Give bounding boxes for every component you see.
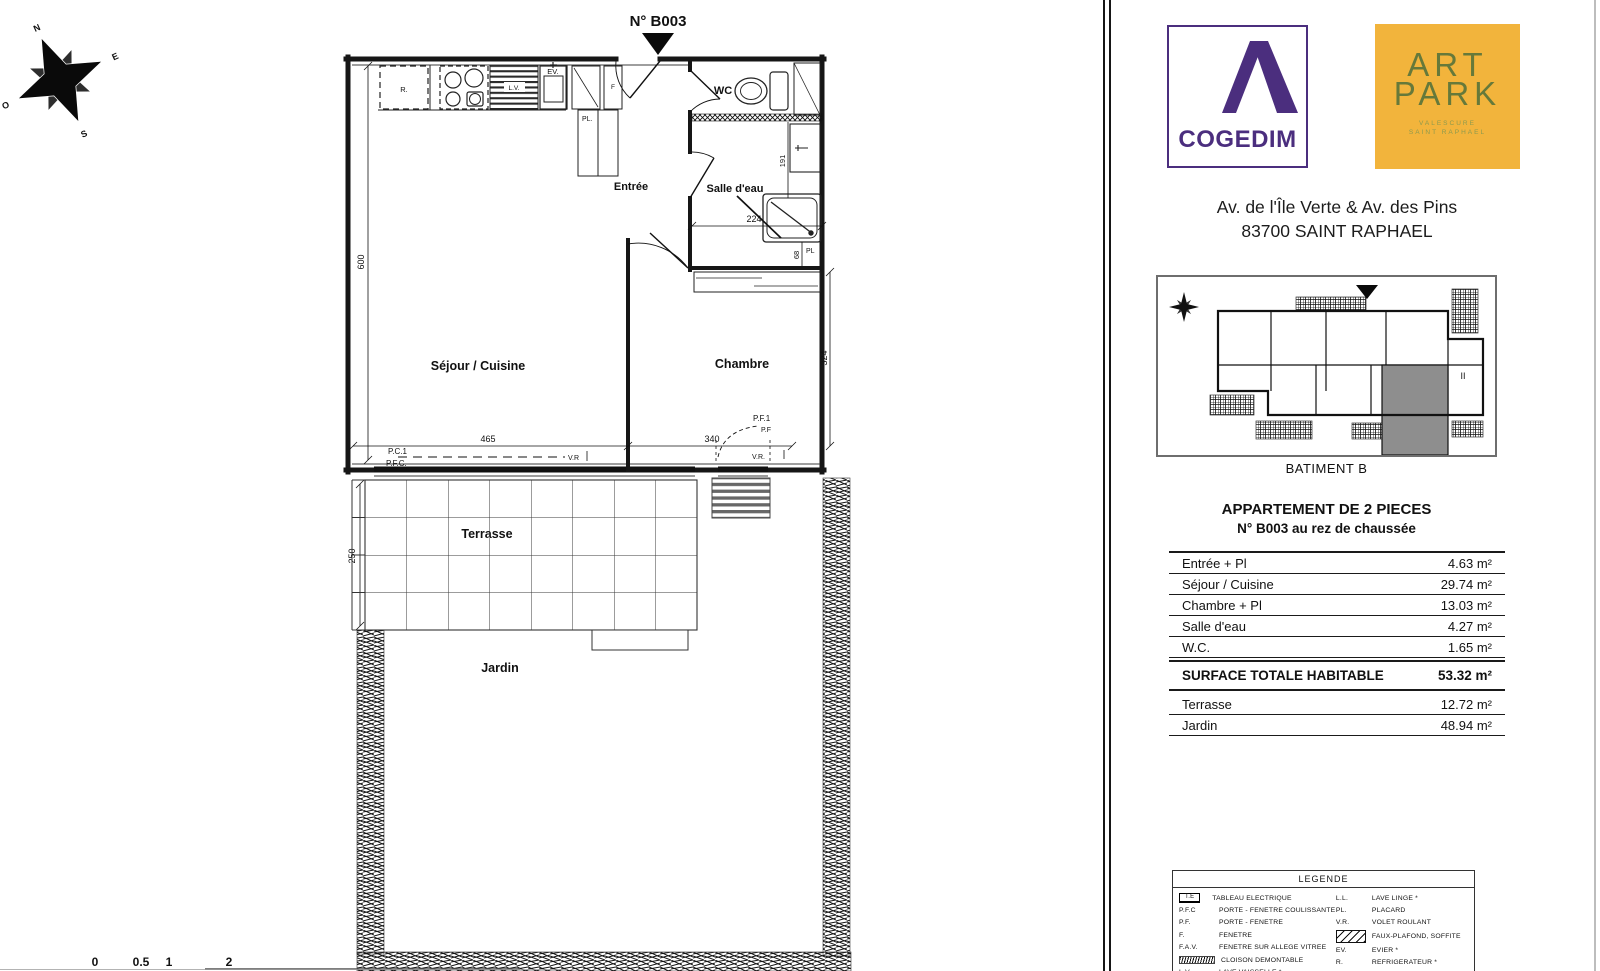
title-line2: N° B003 au rez de chaussée	[1156, 521, 1497, 536]
key-plan-level: II	[1460, 371, 1465, 381]
table-row: Terrasse 12.72 m²	[1169, 694, 1505, 715]
dim-sejour-w: 465	[480, 434, 495, 444]
legend-label: TABLEAU ELECTRIQUE	[1212, 895, 1336, 902]
legend-item: P.F.C PORTE - FENETRE COULISSANTE	[1179, 904, 1336, 916]
kitchen-counter	[378, 62, 622, 110]
table-row: W.C. 1.65 m²	[1169, 637, 1505, 658]
label-pc1: P.C.1	[388, 447, 408, 456]
dim-sejour-h: 600	[356, 254, 366, 269]
legend-item: F.A.V. FENETRE SUR ALLEGE VITREE	[1179, 942, 1336, 954]
legend-label: CLOISON DEMONTABLE	[1221, 957, 1336, 964]
dim-chambre-w: 340	[704, 434, 719, 444]
chambre-closet-label: PL	[806, 248, 815, 255]
artpark-sub2: SAINT RAPHAEL	[1375, 128, 1520, 137]
legend-label: FENETRE	[1219, 932, 1336, 939]
surface-table: Entrée + Pl 4.63 m² Séjour / Cuisine 29.…	[1169, 551, 1505, 736]
legend-abbr: P.F.C	[1179, 907, 1219, 914]
row-value: 13.03 m²	[1441, 598, 1492, 613]
legend-item: CLOISON DEMONTABLE	[1179, 954, 1336, 966]
table-total-row: SURFACE TOTALE HABITABLE 53.32 m²	[1169, 660, 1505, 691]
legend-label: FENETRE SUR ALLEGE VITREE	[1219, 944, 1336, 951]
dim-placard: 68	[792, 251, 801, 259]
legend-abbr: F.	[1179, 932, 1219, 939]
door-swings	[616, 61, 720, 268]
legend: LEGENDE T.E TABLEAU ELECTRIQUE P.F.C POR…	[1172, 870, 1475, 971]
table-row: Entrée + Pl 4.63 m²	[1169, 553, 1505, 574]
legend-abbr: P.F.	[1179, 919, 1219, 926]
legend-abbr: L.L.	[1336, 895, 1372, 902]
legend-item: FAUX-PLAFOND, SOFFITE	[1336, 929, 1471, 944]
soffit-hatch-icon	[1336, 930, 1366, 943]
table-row: Chambre + Pl 13.03 m²	[1169, 595, 1505, 616]
row-label: Chambre + Pl	[1182, 598, 1262, 613]
legend-label: PLACARD	[1372, 907, 1471, 914]
room-chambre: Chambre	[715, 357, 769, 371]
label-vr-sejour: V.R	[568, 455, 579, 462]
row-label: W.C.	[1182, 640, 1210, 655]
address-line1: Av. de l'Île Verte & Av. des Pins	[1156, 195, 1518, 219]
unit-marker-label: N° B003	[630, 13, 687, 30]
legend-item: PL. PLACARD	[1336, 904, 1471, 916]
dim-chambre-h: 324	[819, 350, 829, 365]
title-line1: APPARTEMENT DE 2 PIECES	[1156, 501, 1497, 518]
toilet-icon	[735, 72, 788, 110]
label-pf1: P.F.1	[753, 414, 771, 423]
row-value: 1.65 m²	[1448, 640, 1492, 655]
window-unit-label: F	[611, 84, 615, 91]
room-entree: Entrée	[614, 181, 648, 193]
dishwasher-label: L.V.	[509, 85, 520, 92]
legend-label: EVIER *	[1372, 947, 1471, 954]
legend-label: PORTE - FENETRE	[1219, 919, 1336, 926]
scale-0: 0	[92, 955, 99, 969]
compass-e: E	[110, 51, 120, 63]
plan-sheet: N E S O N° B003	[0, 0, 1600, 971]
legend-abbr: PL.	[1336, 907, 1372, 914]
room-sejour: Séjour / Cuisine	[431, 359, 526, 373]
scale-1: 1	[166, 955, 173, 969]
room-salle-eau: Salle d'eau	[706, 183, 763, 195]
legend-item: L.V. LAVE VAISSELLE *	[1179, 966, 1336, 971]
legend-label: LAVE LINGE *	[1372, 895, 1471, 902]
legend-label: PORTE - FENETRE COULISSANTE	[1219, 907, 1336, 914]
entree-closet-label: PL.	[582, 116, 593, 123]
label-pfc: P.F.C.	[386, 459, 407, 468]
legend-right-column: L.L. LAVE LINGE * PL. PLACARD V.R. VOLET…	[1336, 892, 1471, 971]
room-jardin: Jardin	[481, 661, 519, 675]
sheet-right-border	[1594, 0, 1596, 971]
artpark-logo: ART PARK VALESCURE SAINT RAPHAEL	[1375, 24, 1520, 169]
sink-label: EV.	[547, 67, 558, 76]
sejour-window-glass	[374, 467, 695, 473]
opening-annotations	[398, 426, 784, 464]
row-value: 29.74 m²	[1441, 577, 1492, 592]
legend-label: VOLET ROULANT	[1372, 919, 1471, 926]
entry-triangle-icon	[642, 33, 674, 55]
legend-title: LEGENDE	[1173, 871, 1474, 888]
apartment-title: APPARTEMENT DE 2 PIECES N° B003 au rez d…	[1156, 501, 1497, 536]
artpark-sub1: VALESCURE	[1375, 119, 1520, 128]
legend-item: T.E TABLEAU ELECTRIQUE	[1179, 892, 1336, 904]
chambre-closet	[694, 272, 820, 292]
legend-abbr: V.R.	[1336, 919, 1372, 926]
legend-label: FAUX-PLAFOND, SOFFITE	[1372, 933, 1471, 940]
legend-label: REFRIGERATEUR *	[1372, 959, 1471, 966]
row-label: Entrée + Pl	[1182, 556, 1247, 571]
legend-item: R. REFRIGERATEUR *	[1336, 957, 1471, 969]
legend-item: EV. EVIER *	[1336, 944, 1471, 956]
legend-item: V.R. VOLET ROULANT	[1336, 917, 1471, 929]
row-value: 12.72 m²	[1441, 697, 1492, 712]
legend-abbr: F.A.V.	[1179, 944, 1219, 951]
dim-sde-h: 191	[778, 155, 787, 168]
table-row: Jardin 48.94 m²	[1169, 715, 1505, 736]
panel-divider	[1103, 0, 1111, 971]
lambda-icon	[1170, 27, 1306, 119]
legend-item: L.L. LAVE LINGE *	[1336, 892, 1471, 904]
row-label: Séjour / Cuisine	[1182, 577, 1274, 592]
room-wc: WC	[714, 85, 732, 97]
electrical-panel-icon: T.E	[1179, 893, 1200, 904]
highlighted-unit	[1382, 365, 1448, 455]
dim-sde-w: 224	[746, 214, 761, 224]
address-line2: 83700 SAINT RAPHAEL	[1156, 219, 1518, 243]
total-label: SURFACE TOTALE HABITABLE	[1182, 668, 1384, 683]
cogedim-logo: COGEDIM	[1167, 25, 1308, 168]
artpark-line2: PARK	[1375, 79, 1520, 108]
row-label: Jardin	[1182, 718, 1217, 733]
label-vr-chambre: V.R.	[752, 454, 765, 461]
compass-o: O	[0, 99, 10, 111]
exterior-steps	[712, 478, 770, 518]
chambre-window-glass	[718, 467, 768, 473]
label-pf: P.F	[761, 427, 771, 434]
compass-s: S	[79, 128, 89, 140]
refrigerator-label: R.	[400, 85, 408, 94]
key-plan-caption: BATIMENT B	[1156, 461, 1497, 476]
compass-rose-icon: N E S O	[0, 0, 144, 164]
scale-05: 0.5	[133, 955, 150, 969]
total-value: 53.32 m²	[1438, 668, 1492, 683]
row-label: Terrasse	[1182, 697, 1232, 712]
project-address: Av. de l'Île Verte & Av. des Pins 83700 …	[1156, 195, 1518, 243]
legend-left-column: T.E TABLEAU ELECTRIQUE P.F.C PORTE - FEN…	[1179, 892, 1336, 971]
compass-n: N	[32, 22, 42, 34]
row-value: 4.63 m²	[1448, 556, 1492, 571]
washbasin-icon	[790, 124, 820, 172]
row-label: Salle d'eau	[1182, 619, 1246, 634]
cogedim-wordmark: COGEDIM	[1169, 126, 1306, 154]
legend-item: F. FENETRE	[1179, 929, 1336, 941]
washing-machine	[794, 63, 820, 115]
shower-icon	[763, 194, 821, 242]
key-plan-compass-icon	[1169, 292, 1199, 322]
scale-2: 2	[226, 955, 233, 969]
legend-abbr: EV.	[1336, 947, 1372, 954]
partition-hatch-icon	[1179, 956, 1215, 964]
key-plan: II	[1156, 275, 1497, 457]
legend-item: P.F. PORTE - FENETRE	[1179, 917, 1336, 929]
table-row: Salle d'eau 4.27 m²	[1169, 616, 1505, 637]
wall-inner-faces	[352, 65, 820, 476]
legend-abbr: R.	[1336, 959, 1372, 966]
row-value: 4.27 m²	[1448, 619, 1492, 634]
table-row: Séjour / Cuisine 29.74 m²	[1169, 574, 1505, 595]
floor-plan: N E S O N° B003	[0, 0, 1085, 971]
terrace-grid	[352, 478, 770, 650]
row-value: 48.94 m²	[1441, 718, 1492, 733]
